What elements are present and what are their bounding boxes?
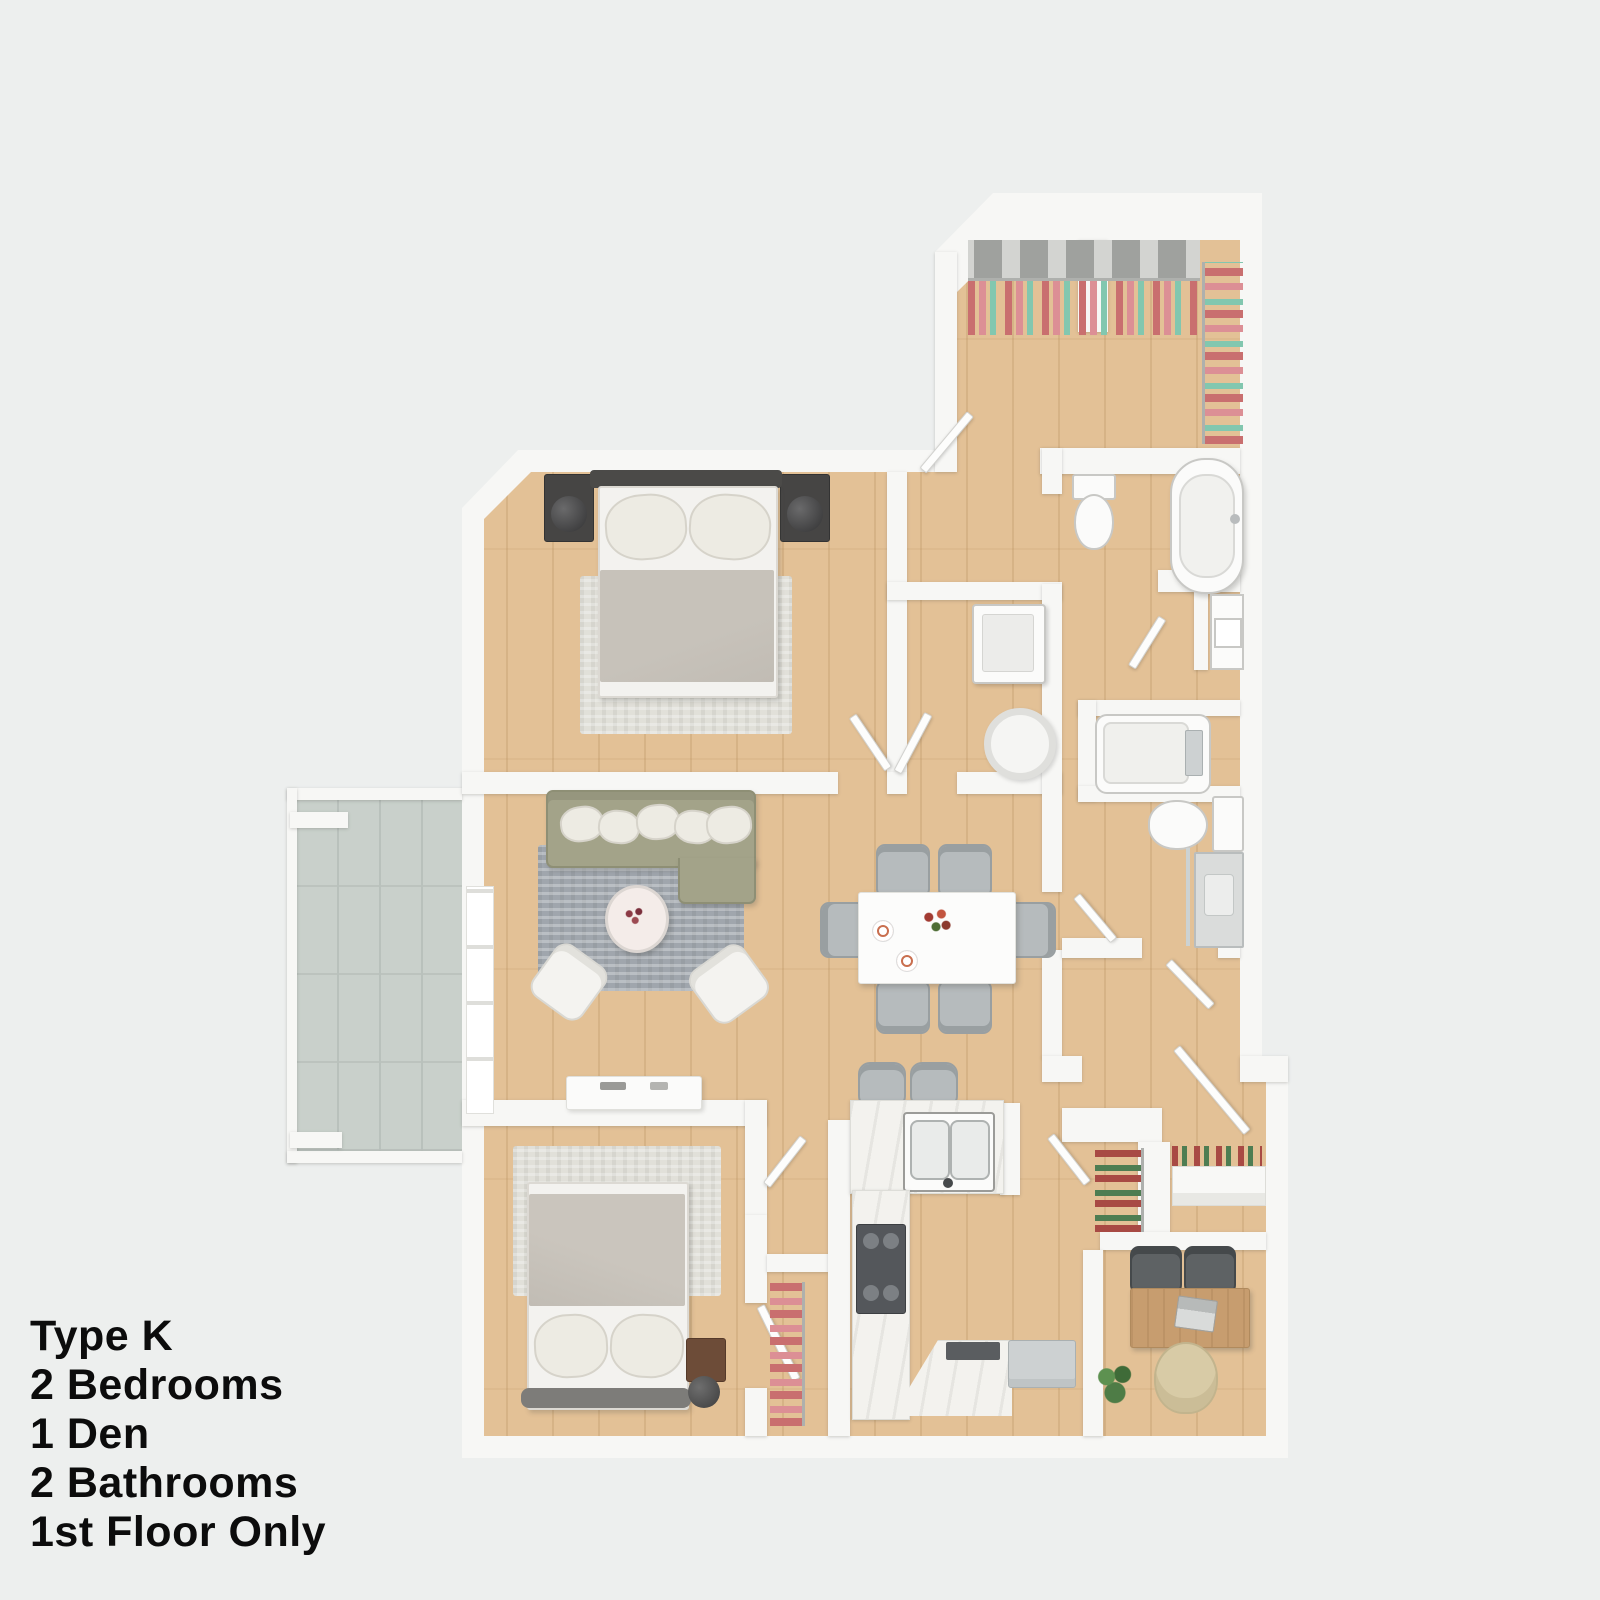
den-office-chair <box>1154 1342 1218 1414</box>
plan-label: Type K 2 Bedrooms 1 Den 2 Bathrooms 1st … <box>30 1312 326 1557</box>
den-wardrobe-shelf <box>1172 1166 1266 1206</box>
plan-bathrooms-label: 2 Bathrooms <box>30 1459 326 1508</box>
plan-bedrooms-label: 2 Bedrooms <box>30 1361 326 1410</box>
plan-den-label: 1 Den <box>30 1410 326 1459</box>
den-guest-chair <box>1184 1246 1236 1294</box>
den-plant <box>1094 1360 1136 1408</box>
den-guest-chair <box>1130 1246 1182 1294</box>
plan-floor-label: 1st Floor Only <box>30 1508 326 1557</box>
den-closet-clothes-top <box>1172 1146 1262 1166</box>
plan-type-label: Type K <box>30 1312 326 1361</box>
floorplan-image: { "label": { "lines": ["Type K", "2 Bedr… <box>0 0 1600 1600</box>
den-closet-clothes-left <box>1095 1148 1144 1232</box>
den-laptop <box>1174 1295 1218 1332</box>
